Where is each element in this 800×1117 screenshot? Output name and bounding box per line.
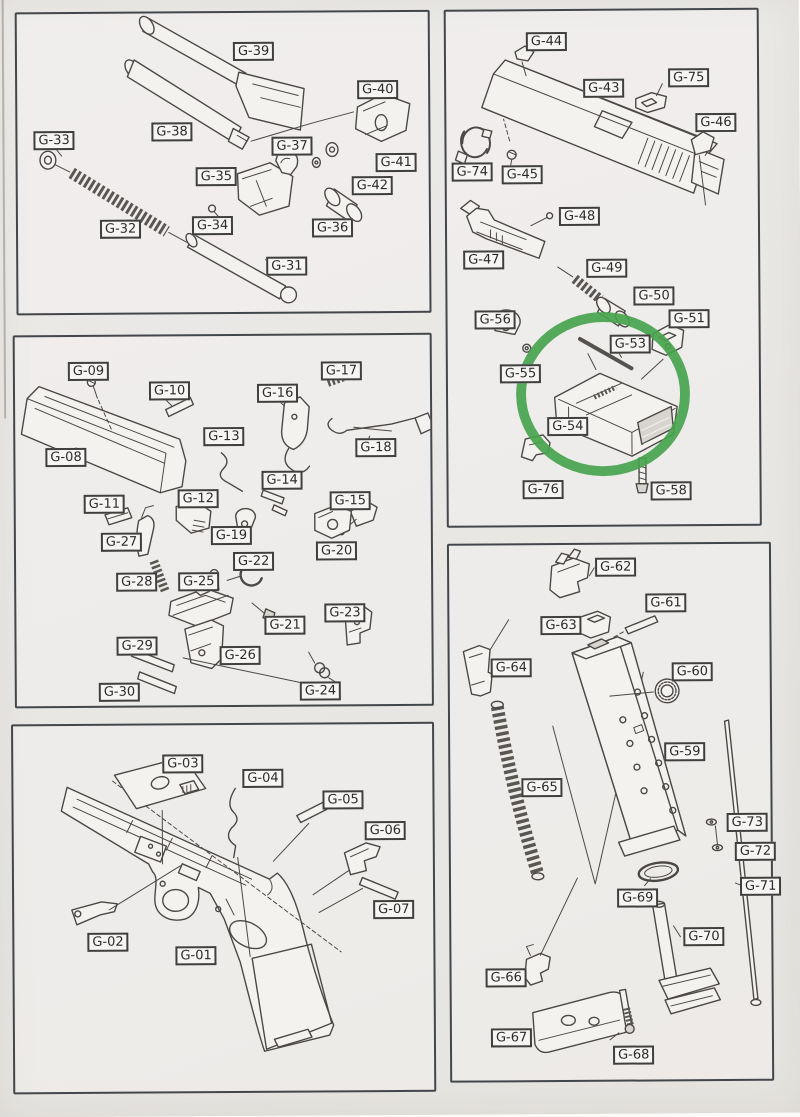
part-label-g-03: G-03 <box>162 754 203 773</box>
panel-magazine-group: G-62G-61G-63G-64G-60G-59G-65G-73G-72G-71… <box>447 542 774 1083</box>
part-label-g-71: G-71 <box>740 877 781 896</box>
part-label-g-17: G-17 <box>321 361 362 380</box>
part-label-g-45: G-45 <box>502 165 543 184</box>
part-label-g-58: G-58 <box>651 481 692 500</box>
part-label-g-28: G-28 <box>116 572 157 591</box>
part-label-g-04: G-04 <box>242 769 283 788</box>
part-label-g-06: G-06 <box>365 821 406 840</box>
part-label-g-33: G-33 <box>33 131 74 150</box>
part-label-g-12: G-12 <box>178 489 219 508</box>
part-label-g-47: G-47 <box>463 250 504 269</box>
exploded-drawing-frame-group <box>13 724 434 1093</box>
exploded-drawing-magazine-group <box>449 544 772 1081</box>
part-label-g-66: G-66 <box>486 968 527 987</box>
part-label-g-23: G-23 <box>324 603 365 622</box>
panel-barrel-recoil-group: G-39G-40G-38G-37G-33G-41G-35G-42G-34G-32… <box>15 10 432 316</box>
part-label-g-25: G-25 <box>178 572 219 591</box>
part-label-g-24: G-24 <box>300 681 341 700</box>
part-label-g-46: G-46 <box>695 113 736 132</box>
part-label-g-64: G-64 <box>491 658 532 677</box>
part-label-g-38: G-38 <box>151 122 192 141</box>
part-label-g-55: G-55 <box>500 364 541 383</box>
part-label-g-59: G-59 <box>664 742 705 761</box>
part-label-g-54: G-54 <box>547 417 588 436</box>
part-label-g-31: G-31 <box>266 257 307 276</box>
part-label-g-69: G-69 <box>617 888 658 907</box>
panel-trigger-receiver-group: G-09G-17G-10G-16G-13G-18G-08G-14G-12G-15… <box>13 333 434 709</box>
part-label-g-74: G-74 <box>452 162 493 181</box>
part-label-g-48: G-48 <box>559 207 600 226</box>
part-label-g-53: G-53 <box>610 334 651 353</box>
part-label-g-21: G-21 <box>264 616 305 635</box>
part-label-g-37: G-37 <box>271 137 312 156</box>
part-label-g-60: G-60 <box>672 662 713 681</box>
part-label-g-40: G-40 <box>357 80 398 99</box>
part-label-g-36: G-36 <box>312 218 353 237</box>
part-label-g-67: G-67 <box>491 1028 532 1047</box>
part-label-g-73: G-73 <box>727 813 768 832</box>
part-label-g-27: G-27 <box>101 533 142 552</box>
part-label-g-20: G-20 <box>316 541 357 560</box>
panel-slide-internals-group: G-44G-75G-43G-46G-74G-45G-48G-47G-49G-50… <box>444 8 762 528</box>
part-label-g-43: G-43 <box>583 79 624 98</box>
part-label-g-68: G-68 <box>613 1045 654 1064</box>
paper-background: G-39G-40G-38G-37G-33G-41G-35G-42G-34G-32… <box>0 0 800 1117</box>
part-label-g-39: G-39 <box>233 42 274 61</box>
part-label-g-13: G-13 <box>203 427 244 446</box>
part-label-g-32: G-32 <box>100 220 141 239</box>
part-label-g-61: G-61 <box>645 593 686 612</box>
part-label-g-75: G-75 <box>668 68 709 87</box>
page-edge-shadow <box>2 0 7 418</box>
part-label-g-29: G-29 <box>116 636 157 655</box>
part-label-g-65: G-65 <box>521 778 562 797</box>
part-label-g-44: G-44 <box>526 32 567 51</box>
part-label-g-22: G-22 <box>233 552 274 571</box>
part-label-g-42: G-42 <box>352 176 393 195</box>
part-label-g-35: G-35 <box>196 167 237 186</box>
part-label-g-56: G-56 <box>475 310 516 329</box>
part-label-g-14: G-14 <box>261 471 302 490</box>
part-label-g-70: G-70 <box>683 927 724 946</box>
part-label-g-72: G-72 <box>735 842 776 861</box>
part-label-g-05: G-05 <box>322 790 363 809</box>
scanned-manual-page: { "document": { "kind": "exploded parts … <box>0 0 800 1111</box>
part-label-g-11: G-11 <box>84 495 125 514</box>
part-label-g-51: G-51 <box>669 309 710 328</box>
part-label-g-18: G-18 <box>355 438 396 457</box>
part-label-g-63: G-63 <box>540 616 581 635</box>
part-label-g-26: G-26 <box>220 646 261 665</box>
part-label-g-41: G-41 <box>376 153 417 172</box>
panel-frame-group: G-03G-04G-05G-06G-07G-02G-01 <box>11 722 436 1095</box>
part-label-g-30: G-30 <box>99 683 140 702</box>
part-label-g-07: G-07 <box>373 900 414 919</box>
part-label-g-09: G-09 <box>68 362 109 381</box>
part-label-g-10: G-10 <box>149 381 190 400</box>
part-label-g-15: G-15 <box>330 491 371 510</box>
part-label-g-08: G-08 <box>45 448 86 467</box>
part-label-g-16: G-16 <box>257 384 298 403</box>
part-label-g-01: G-01 <box>175 946 216 965</box>
exploded-drawing-barrel-group <box>17 12 430 314</box>
part-label-g-34: G-34 <box>192 216 233 235</box>
part-label-g-50: G-50 <box>633 286 674 305</box>
part-label-g-49: G-49 <box>586 259 627 278</box>
part-label-g-62: G-62 <box>595 558 636 577</box>
part-label-g-76: G-76 <box>523 480 564 499</box>
part-label-g-02: G-02 <box>87 933 128 952</box>
part-label-g-19: G-19 <box>211 526 252 545</box>
